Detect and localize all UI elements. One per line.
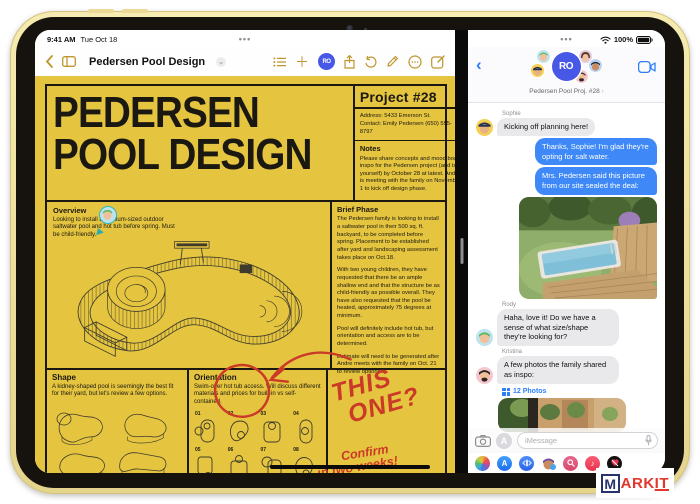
battery-icon: [636, 36, 653, 44]
received-message: Haha, love it! Do we have a sense of wha…: [497, 309, 619, 346]
undo-icon[interactable]: [364, 55, 377, 68]
flyer-orientation-cell: Orientation Swim-over hot tub access. Wi…: [189, 370, 328, 473]
orientation-heading: Orientation: [194, 373, 321, 382]
watermark-it: IT: [655, 475, 669, 492]
status-date: Tue Oct 18: [80, 35, 117, 44]
watermark-ark: ARK: [621, 475, 655, 492]
received-message: Kicking off planning here!: [497, 118, 595, 136]
app-store-icon[interactable]: A: [497, 456, 512, 471]
sender-label: Kristina: [502, 349, 657, 355]
project-number: Project #28: [355, 86, 455, 109]
watermark-m: M: [601, 474, 620, 493]
photos-app-icon[interactable]: [475, 456, 490, 471]
flyer-annotation-cell: THIS ONE? Confirm in two weeks!: [328, 370, 445, 473]
status-time: 9:41 AM: [47, 35, 75, 44]
messages-pane: ••• 100% ‹: [468, 30, 665, 473]
chat-scroll-area[interactable]: Sophie Kicking off planning here! Thanks…: [468, 103, 665, 473]
messages-header: ‹: [468, 47, 665, 103]
collaboration-avatar[interactable]: RO: [318, 53, 335, 70]
back-chevron-icon[interactable]: [45, 55, 53, 68]
markit-watermark: M ARK IT: [596, 468, 674, 498]
sent-photo-backyard-pool[interactable]: [519, 197, 657, 299]
volume-button: [88, 9, 114, 13]
handwriting-this-one: THIS ONE?: [329, 359, 423, 430]
checklist-icon[interactable]: [273, 57, 286, 67]
member-avatar: [531, 64, 544, 77]
volume-button: [122, 9, 148, 13]
back-chevron-icon[interactable]: ‹: [476, 56, 482, 73]
avatar[interactable]: [476, 329, 493, 346]
share-icon[interactable]: [344, 55, 355, 69]
message-input[interactable]: [523, 435, 645, 446]
sender-label: Rody: [502, 302, 657, 308]
screenshot-page: 9:41 AM Tue Oct 18 ••• Pedersen Pool Des…: [0, 0, 700, 504]
flyer-brief-cell: Brief Phase The Pedersen family is looki…: [330, 202, 445, 368]
ipad-screen: 9:41 AM Tue Oct 18 ••• Pedersen Pool Des…: [35, 30, 665, 473]
note-title[interactable]: Pedersen Pool Design: [89, 56, 205, 68]
multitask-dots-icon[interactable]: •••: [239, 34, 251, 44]
shape-body: A kidney-shaped pool is seemingly the be…: [52, 384, 182, 400]
memoji-stickers-icon[interactable]: [541, 456, 556, 471]
flyer-shape-cell: Shape A kidney-shaped pool is seemingly …: [47, 370, 189, 473]
brief-heading: Brief Phase: [337, 205, 440, 215]
conversation-title[interactable]: Pedersen Pool Proj. #28 ›: [468, 88, 665, 95]
group-avatar-cluster[interactable]: RO: [529, 50, 605, 86]
group-logo-avatar: RO: [552, 52, 581, 81]
shape-heading: Shape: [52, 373, 182, 382]
multitask-dots-icon[interactable]: •••: [560, 34, 572, 44]
flyer-project-cell: Project #28 Address: 5433 Emerson St. Co…: [353, 86, 455, 200]
flyer-headline-cell: PEDERSEN POOL DESIGN: [47, 86, 353, 200]
imessage-apps-icon[interactable]: A: [496, 433, 512, 449]
status-bar-left: 9:41 AM Tue Oct 18 •••: [35, 30, 455, 47]
pool-blueprint-drawing: [47, 230, 330, 364]
message-input-bar: A: [468, 428, 665, 453]
imessage-field[interactable]: [517, 432, 658, 449]
pool-shape-options-drawing: [52, 403, 178, 473]
member-avatar: [537, 50, 550, 63]
project-notes: Notes Please share concepts and mood boa…: [355, 141, 455, 196]
wifi-icon: [600, 36, 611, 44]
status-bar-right: ••• 100%: [468, 30, 665, 47]
notes-toolbar: Pedersen Pool Design ⌄ ＋ RO: [35, 47, 455, 76]
flyer-headline: PEDERSEN POOL DESIGN: [53, 92, 312, 176]
compose-icon[interactable]: [431, 55, 445, 69]
camera-icon[interactable]: [475, 435, 491, 447]
sent-message: Mrs. Pedersen said this picture from our…: [535, 167, 657, 195]
notes-pane: 9:41 AM Tue Oct 18 ••• Pedersen Pool Des…: [35, 30, 455, 473]
more-circle-icon[interactable]: [408, 55, 422, 69]
orientation-body: Swim-over hot tub access. Will discuss d…: [194, 384, 321, 407]
split-view-drag-handle[interactable]: [460, 238, 463, 264]
audio-app-icon[interactable]: [519, 456, 534, 471]
photos-collection-link[interactable]: 12 Photos: [502, 388, 657, 396]
note-canvas[interactable]: PEDERSEN POOL DESIGN Project #28 Address…: [35, 76, 455, 473]
member-avatar: [589, 59, 602, 72]
photos-grid-icon: [502, 388, 510, 396]
split-view-divider[interactable]: [455, 30, 468, 473]
sender-label: Sophie: [502, 111, 657, 117]
sent-message: Thanks, Sophie! I'm glad they're opting …: [535, 138, 657, 166]
markup-pen-icon[interactable]: [386, 55, 399, 68]
flyer-overview-cell: Overview Looking to install a medium-siz…: [47, 202, 330, 368]
hashtag-images-icon[interactable]: [563, 456, 578, 471]
title-chevron-down-icon[interactable]: ⌄: [216, 57, 226, 67]
microphone-icon[interactable]: [645, 435, 652, 446]
project-contact: Address: 5433 Emerson St. Contact: Emily…: [355, 109, 455, 141]
overview-heading: Overview: [53, 206, 324, 215]
add-icon[interactable]: ＋: [295, 52, 309, 72]
photo-collage-preview[interactable]: [498, 398, 626, 432]
received-message: A few photos the family shared as inspo:: [497, 356, 619, 384]
collaborator-cursor-avatar: [99, 206, 117, 224]
avatar[interactable]: [476, 119, 493, 136]
flyer-frame: PEDERSEN POOL DESIGN Project #28 Address…: [45, 84, 447, 473]
battery-percent: 100%: [614, 35, 633, 44]
avatar[interactable]: [476, 367, 493, 384]
ipad-device: 9:41 AM Tue Oct 18 ••• Pedersen Pool Des…: [10, 11, 690, 494]
home-indicator[interactable]: [270, 465, 430, 470]
sidebar-icon[interactable]: [62, 56, 76, 67]
facetime-video-icon[interactable]: [638, 61, 656, 73]
